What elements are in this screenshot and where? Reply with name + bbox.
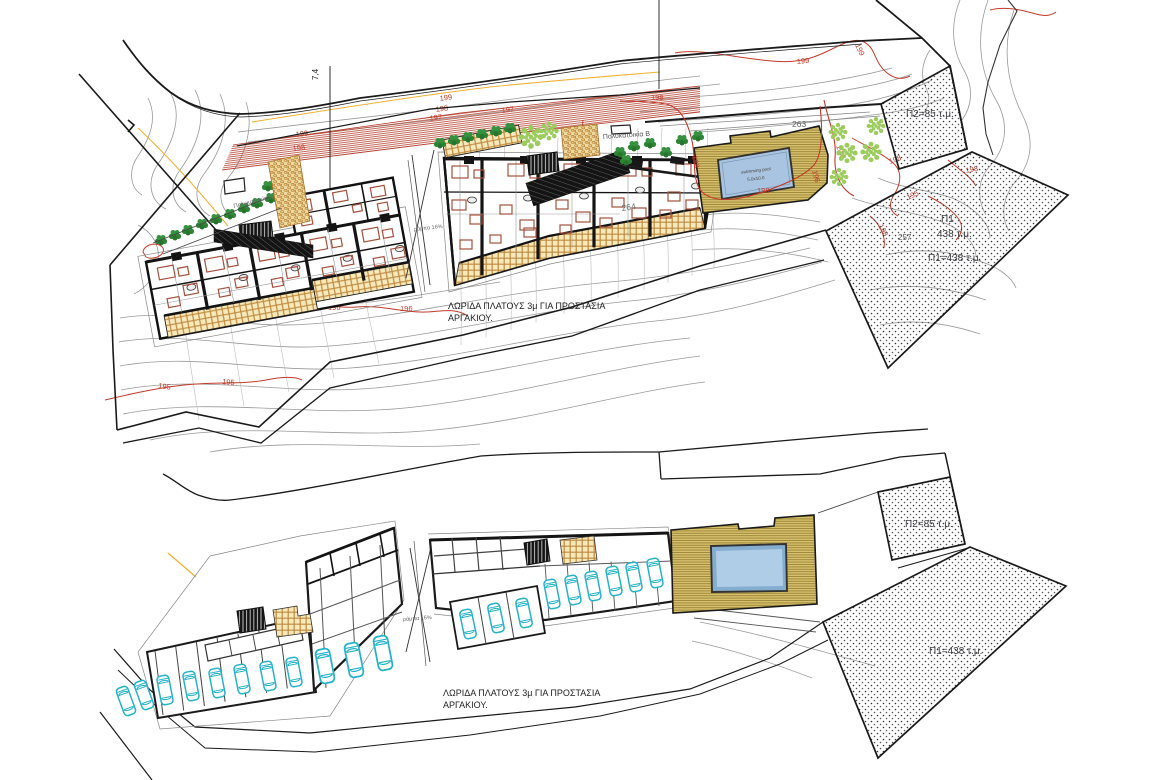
- svg-text:198: 198: [651, 93, 664, 102]
- svg-text:263: 263: [792, 119, 806, 129]
- svg-text:Π2=85 τ.μ.: Π2=85 τ.μ.: [905, 519, 953, 530]
- svg-text:7,4: 7,4: [311, 68, 320, 80]
- svg-text:ΑΡΓΑΚΙΟΥ.: ΑΡΓΑΚΙΟΥ.: [443, 700, 488, 710]
- svg-text:Π1=438 τ.μ.: Π1=438 τ.μ.: [929, 646, 982, 657]
- svg-text:198: 198: [757, 186, 770, 195]
- svg-text:Π1: Π1: [941, 214, 954, 225]
- svg-text:199: 199: [796, 56, 809, 66]
- svg-text:195: 195: [222, 377, 235, 387]
- svg-text:197: 197: [429, 112, 443, 123]
- svg-text:ΛΩΡΙΔΑ ΠΛΑΤΟΥΣ 3μ ΓΙΑ ΠΡΟΣΤΑΣ: ΛΩΡΙΔΑ ΠΛΑΤΟΥΣ 3μ ΓΙΑ ΠΡΟΣΤΑΣΙΑ: [448, 301, 605, 311]
- svg-text:ΑΡΓΑΚΙΟΥ.: ΑΡΓΑΚΙΟΥ.: [448, 313, 493, 323]
- svg-text:Π2=85 τ.μ.: Π2=85 τ.μ.: [906, 109, 954, 120]
- svg-text:438 τ.μ.: 438 τ.μ.: [937, 229, 972, 240]
- svg-text:199: 199: [439, 92, 453, 103]
- svg-text:198: 198: [292, 143, 306, 153]
- svg-text:Π1=438 τ.μ.: Π1=438 τ.μ.: [928, 253, 981, 264]
- svg-text:196: 196: [400, 304, 413, 313]
- svg-text:197: 197: [501, 104, 515, 115]
- svg-text:257: 257: [898, 233, 912, 242]
- svg-text:264: 264: [621, 201, 637, 213]
- svg-text:195: 195: [158, 381, 172, 392]
- svg-text:ΛΩΡΙΔΑ ΠΛΑΤΟΥΣ 3μ ΓΙΑ ΠΡΟΣΤΑΣ: ΛΩΡΙΔΑ ΠΛΑΤΟΥΣ 3μ ΓΙΑ ΠΡΟΣΤΑΣΙΑ: [443, 688, 600, 698]
